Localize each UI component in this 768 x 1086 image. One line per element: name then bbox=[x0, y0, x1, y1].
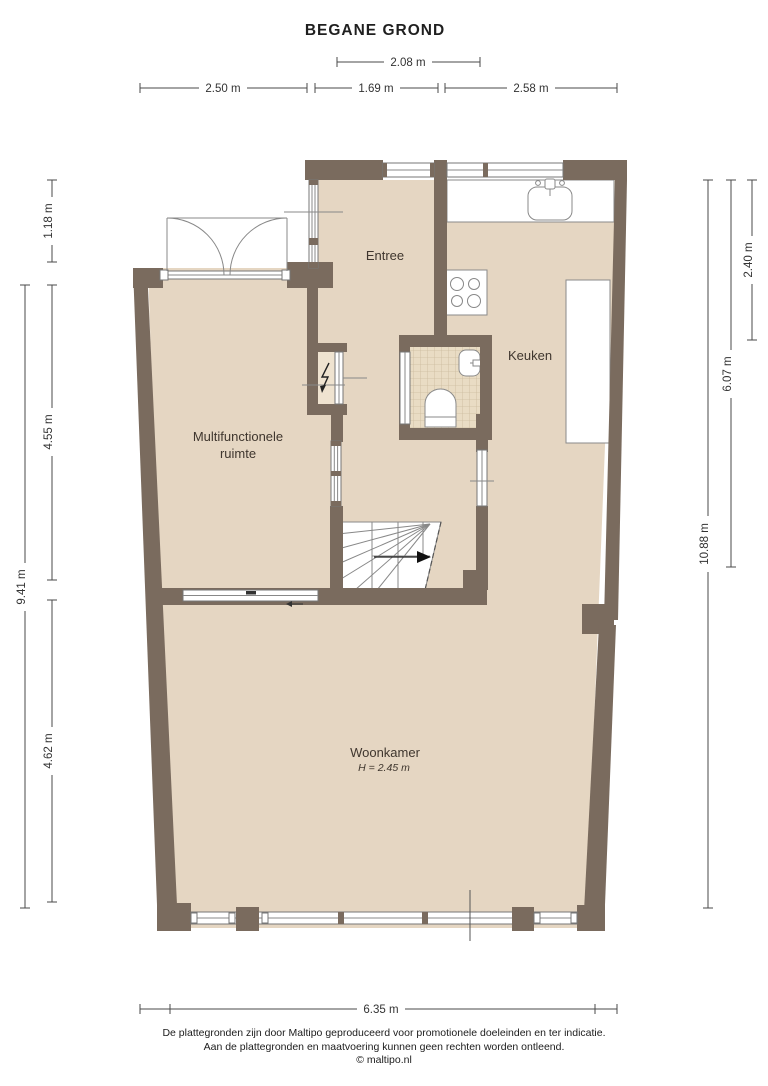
dimension-right-top: 2.40 m bbox=[743, 180, 759, 340]
svg-text:4.62 m: 4.62 m bbox=[43, 733, 55, 768]
dimension-bottom-width: 6.35 m bbox=[140, 1002, 617, 1016]
wall-entree-kitchen bbox=[434, 180, 447, 342]
kitchen-counter-right bbox=[566, 280, 610, 443]
wall-partition-upper bbox=[331, 414, 343, 442]
room-label-woonkamer: Woonkamer bbox=[350, 745, 421, 760]
dimension-right-middle: 6.07 m bbox=[722, 180, 738, 567]
dimension-upper-right-width: 2.58 m bbox=[445, 81, 617, 95]
svg-text:9.41 m: 9.41 m bbox=[16, 569, 28, 604]
double-door-swing-icon bbox=[167, 218, 287, 275]
wall-hall-right-upper bbox=[476, 414, 488, 452]
dimension-top-width: 2.08 m bbox=[337, 55, 480, 69]
room-label-entree: Entree bbox=[366, 248, 404, 263]
wall-meterkast-left bbox=[307, 343, 318, 413]
floorplan-page: 2.08 m 2.50 m 1.69 m 2.58 m bbox=[0, 0, 768, 1086]
window-mf-internal bbox=[183, 590, 318, 601]
glass-partition-stairs bbox=[331, 441, 341, 506]
page-title: BEGANE GROND bbox=[305, 22, 445, 39]
svg-text:2.40 m: 2.40 m bbox=[743, 242, 755, 277]
dimension-left-outer: 9.41 m bbox=[16, 285, 32, 908]
footer-line1: De plattegronden zijn door Maltipo gepro… bbox=[162, 1027, 605, 1039]
wc-basin-icon bbox=[459, 350, 482, 376]
floor-plan-canvas: 2.08 m 2.50 m 1.69 m 2.58 m bbox=[0, 0, 768, 1086]
cooktop-icon bbox=[445, 270, 487, 315]
svg-text:2.08 m: 2.08 m bbox=[390, 57, 425, 69]
wall-meterkast-bottom bbox=[307, 404, 347, 415]
footer: De plattegronden zijn door Maltipo gepro… bbox=[162, 1027, 605, 1066]
window-top-kitchen bbox=[447, 163, 563, 177]
svg-text:10.88 m: 10.88 m bbox=[699, 523, 711, 565]
room-label-multifunctionele-1: Multifunctionele bbox=[193, 429, 283, 444]
wall-top-mid bbox=[434, 160, 447, 180]
wall-entree-west bbox=[307, 262, 318, 352]
footer-line2: Aan de plattegronden en maatvoering kunn… bbox=[204, 1041, 565, 1053]
wall-hall-corner bbox=[463, 570, 487, 590]
svg-text:1.69 m: 1.69 m bbox=[358, 83, 393, 95]
wall-hall-bottom bbox=[343, 588, 487, 605]
wall-bottom-corner-right bbox=[577, 905, 605, 931]
staircase bbox=[338, 522, 441, 590]
wall-wc-top bbox=[399, 335, 492, 347]
svg-text:6.07 m: 6.07 m bbox=[722, 356, 734, 391]
svg-text:4.55 m: 4.55 m bbox=[43, 414, 55, 449]
dimension-left-bottom: 4.62 m bbox=[43, 600, 59, 902]
wall-bottom-corner-left bbox=[157, 903, 191, 931]
svg-text:2.50 m: 2.50 m bbox=[205, 83, 240, 95]
room-label-multifunctionele-2: ruimte bbox=[220, 446, 256, 461]
dimension-left-top: 1.18 m bbox=[43, 180, 59, 262]
svg-text:1.18 m: 1.18 m bbox=[43, 203, 55, 238]
dimension-upper-left-width: 2.50 m bbox=[140, 81, 307, 95]
window-top-entree bbox=[383, 163, 434, 177]
meterkast-floor bbox=[318, 352, 335, 404]
dimension-right-outer: 10.88 m bbox=[699, 180, 715, 908]
front-door-threshold bbox=[160, 270, 290, 280]
dimension-upper-middle-width: 1.69 m bbox=[315, 81, 438, 95]
wall-top-right bbox=[563, 160, 627, 180]
wall-top-left bbox=[305, 160, 383, 180]
svg-text:2.58 m: 2.58 m bbox=[513, 83, 548, 95]
room-label-keuken: Keuken bbox=[508, 348, 552, 363]
glass-wall-entree bbox=[309, 180, 318, 268]
wall-mf-top-left bbox=[133, 268, 163, 288]
room-label-woonkamer-height: H = 2.45 m bbox=[358, 762, 410, 774]
dimension-left-middle: 4.55 m bbox=[43, 285, 59, 580]
toilet-icon bbox=[425, 389, 456, 427]
window-bottom-band bbox=[191, 910, 577, 926]
footer-line3: © maltipo.nl bbox=[356, 1054, 412, 1066]
svg-text:6.35 m: 6.35 m bbox=[363, 1004, 398, 1016]
